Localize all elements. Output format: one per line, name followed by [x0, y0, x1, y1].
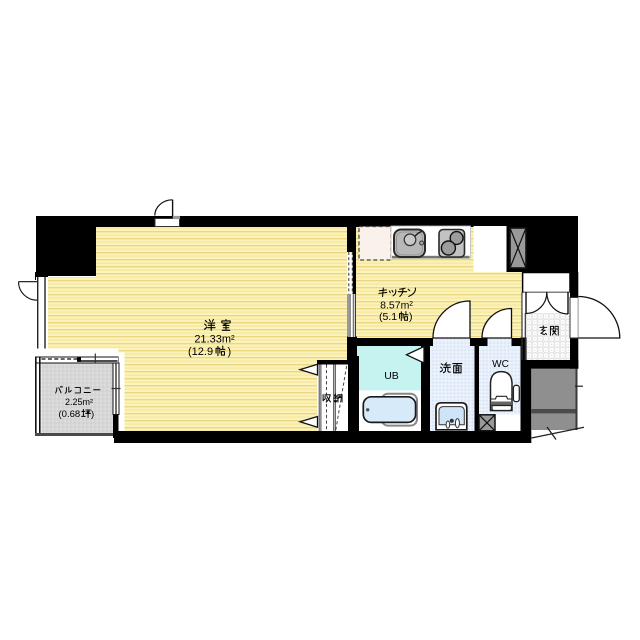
svg-text:8.57m²: 8.57m²	[380, 300, 413, 312]
svg-text:(12.9: (12.9	[188, 346, 213, 358]
svg-text:WC: WC	[492, 359, 509, 370]
svg-text:21.33m²: 21.33m²	[194, 334, 235, 346]
svg-text:UB: UB	[384, 370, 399, 382]
svg-text:(5.1: (5.1	[379, 311, 397, 323]
svg-text:): )	[228, 346, 232, 358]
svg-text:2.25m²: 2.25m²	[65, 397, 93, 407]
svg-text:): )	[91, 409, 94, 420]
svg-text:(0.68: (0.68	[59, 409, 81, 420]
svg-text:): )	[409, 311, 413, 323]
